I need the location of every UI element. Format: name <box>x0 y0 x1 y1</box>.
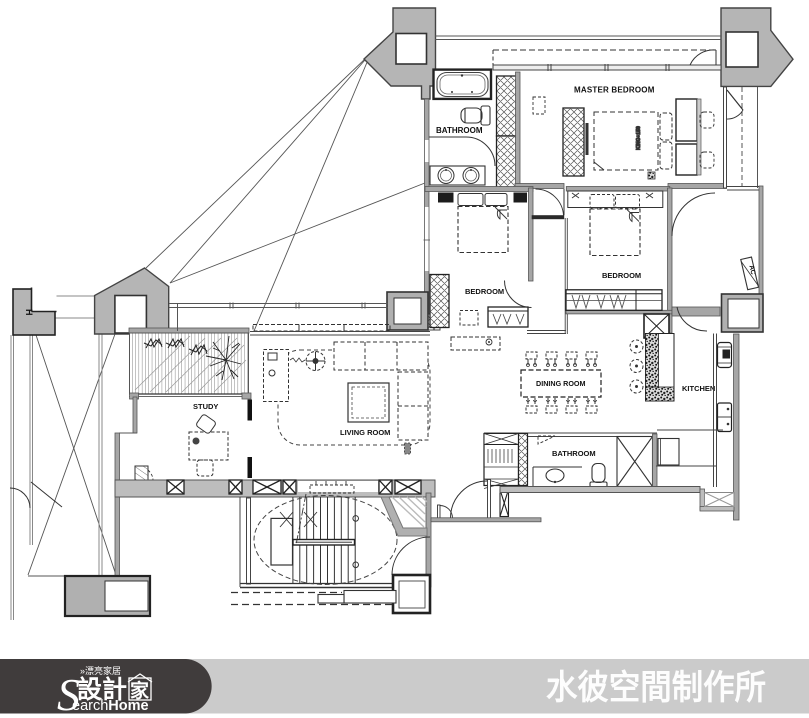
svg-text:H: H <box>24 309 34 316</box>
svg-text:BEDROOM: BEDROOM <box>465 287 504 296</box>
svg-text:»漂亮家居: »漂亮家居 <box>80 665 121 676</box>
svg-text:水彼空間制作所: 水彼空間制作所 <box>546 669 766 707</box>
svg-text:earchHome: earchHome <box>72 698 149 714</box>
svg-text:MASTER BEDROOM: MASTER BEDROOM <box>574 86 655 95</box>
svg-text:LIVING ROOM: LIVING ROOM <box>340 428 390 437</box>
svg-text:STUDY: STUDY <box>193 402 218 411</box>
svg-text:BATHROOM: BATHROOM <box>552 449 596 458</box>
svg-text:BATHROOM: BATHROOM <box>436 126 483 135</box>
svg-text:DINING ROOM: DINING ROOM <box>536 379 586 388</box>
svg-text:KING+150: KING+150 <box>636 126 642 150</box>
svg-text:KITCHEN: KITCHEN <box>682 384 715 393</box>
svg-text:BEDROOM: BEDROOM <box>602 271 641 280</box>
